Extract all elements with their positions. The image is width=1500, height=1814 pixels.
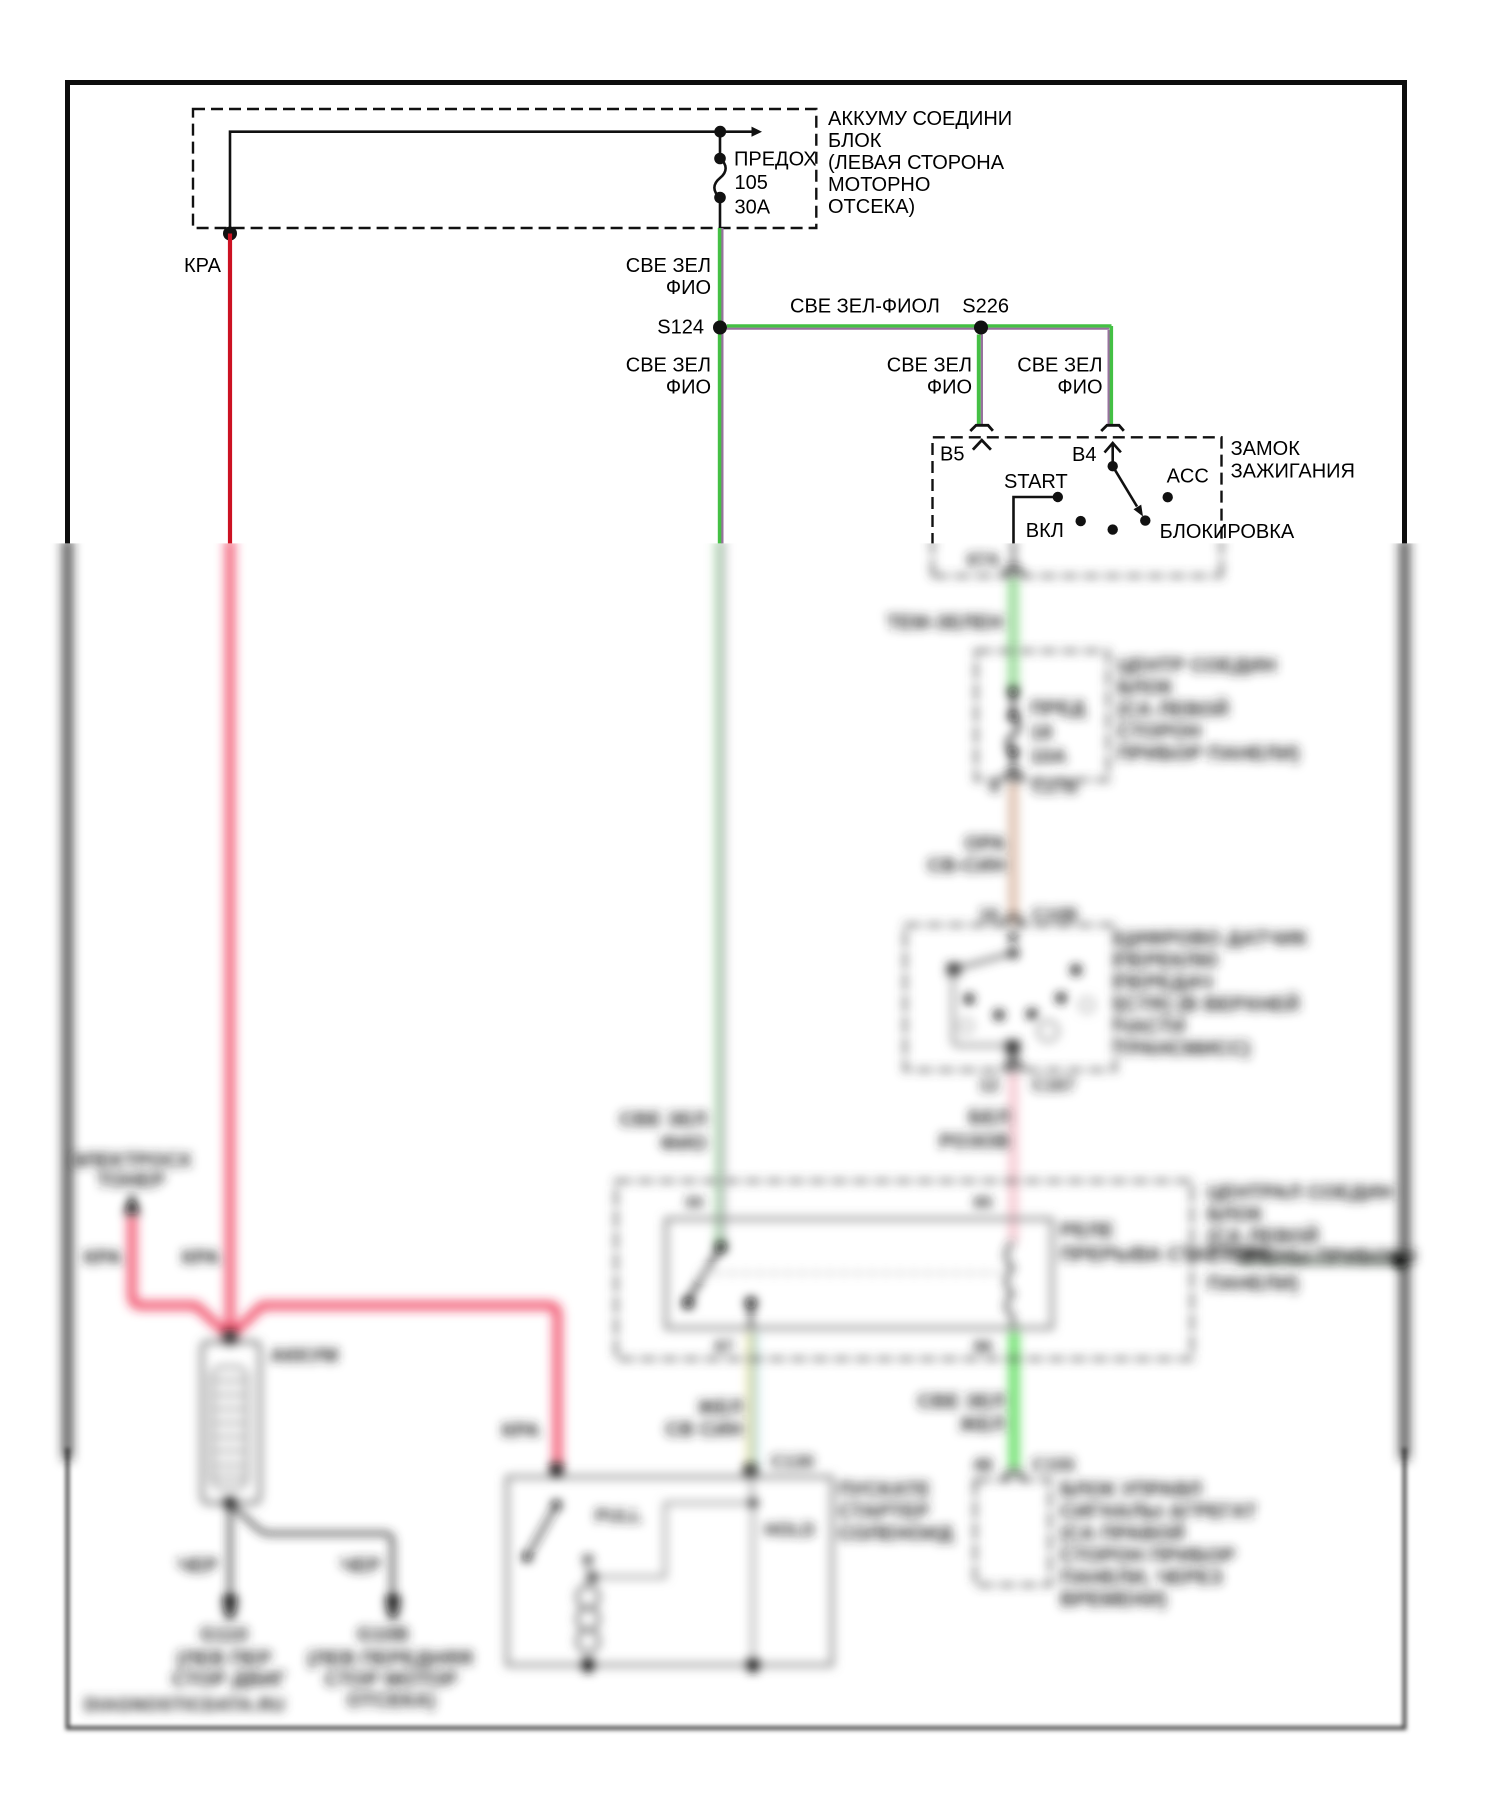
svg-text:ФИО: ФИО (666, 277, 711, 299)
svg-text:СВЕ ЗЕЛ: СВЕ ЗЕЛ (887, 354, 972, 376)
svg-text:ПРЕД: ПРЕД (1030, 698, 1085, 720)
svg-text:S124: S124 (657, 316, 704, 338)
svg-text:85: 85 (974, 1193, 993, 1212)
svg-text:(СА ПРАВОЙ: (СА ПРАВОЙ (1060, 1521, 1185, 1545)
svg-text:18: 18 (1030, 722, 1052, 744)
svg-text:30: 30 (685, 1193, 704, 1212)
svg-text:СВЕ ЗЕЛ: СВЕ ЗЕЛ (917, 1391, 1005, 1413)
svg-text:ОРА: ОРА (964, 833, 1006, 855)
svg-text:(СА ЛЕВОЙ: (СА ЛЕВОЙ (1117, 697, 1229, 721)
svg-text:АККУМУ СОЕДИНИ: АККУМУ СОЕДИНИ (828, 108, 1012, 130)
svg-text:ФИО: ФИО (1057, 376, 1102, 398)
svg-text:12: 12 (979, 1075, 999, 1095)
svg-text:S226: S226 (962, 295, 1009, 317)
svg-text:ВРЕМЕНИ): ВРЕМЕНИ) (1060, 1589, 1167, 1611)
svg-text:ПАНЕЛИ): ПАНЕЛИ) (1207, 1273, 1299, 1295)
svg-text:(ЛЕВАЯ СТОРОНА: (ЛЕВАЯ СТОРОНА (828, 152, 1005, 174)
svg-text:СВЕ ЗЕЛ-ФИОЛ: СВЕ ЗЕЛ-ФИОЛ (790, 295, 940, 317)
svg-text:БЕЛ: БЕЛ (968, 1107, 1010, 1129)
svg-text:(СА ЛЕВОЙ: (СА ЛЕВОЙ (1207, 1224, 1319, 1248)
svg-text:СТОРОНЫ ПРИБОРН: СТОРОНЫ ПРИБОРН (1207, 1246, 1416, 1268)
svg-text:10А: 10А (1030, 746, 1067, 768)
svg-text:86: 86 (974, 1337, 993, 1356)
svg-text:ФИО: ФИО (660, 1133, 707, 1155)
svg-text:СВЕ ЗЕЛ: СВЕ ЗЕЛ (619, 1109, 707, 1131)
svg-text:РЕЛЕ: РЕЛЕ (1060, 1220, 1114, 1242)
svg-text:СВЕ ЗЕЛ: СВЕ ЗЕЛ (1017, 354, 1102, 376)
svg-text:ПАНЕЛИ, ЧЕРЕЗ: ПАНЕЛИ, ЧЕРЕЗ (1060, 1567, 1223, 1589)
svg-text:БЛОК УПРАВЛ: БЛОК УПРАВЛ (1060, 1479, 1202, 1501)
svg-text:ФИО: ФИО (927, 376, 972, 398)
svg-text:СТОР МОТОР: СТОР МОТОР (325, 1669, 458, 1691)
svg-text:С27В: С27В (1032, 777, 1078, 797)
svg-text:105: 105 (735, 172, 768, 194)
svg-text:ЖЕЛ: ЖЕЛ (697, 1397, 743, 1419)
svg-text:ЗАМОК: ЗАМОК (1231, 438, 1301, 460)
svg-text:G10B: G10B (357, 1624, 409, 1646)
svg-text:СВЕ ЗЕЛ: СВЕ ЗЕЛ (626, 354, 711, 376)
svg-text:БЛОК: БЛОК (1117, 677, 1173, 699)
svg-text:16: 16 (979, 905, 999, 925)
svg-text:СТОРОН: СТОРОН (1117, 721, 1201, 743)
svg-text:С167: С167 (1032, 1075, 1075, 1095)
svg-text:ТЕМ-ЗЕЛЕН: ТЕМ-ЗЕЛЕН (886, 612, 1003, 634)
svg-text:ВКЛ: ВКЛ (1026, 520, 1064, 542)
svg-text:ПРИБОР ПАНЕЛИ): ПРИБОР ПАНЕЛИ) (1117, 743, 1300, 765)
svg-text:СТОР ДВИГ: СТОР ДВИГ (172, 1669, 287, 1691)
svg-text:30А: 30А (735, 197, 771, 219)
svg-text:ACC: ACC (1167, 466, 1209, 488)
svg-text:46: 46 (973, 1455, 993, 1475)
svg-text:КРА: КРА (184, 255, 222, 277)
svg-text:С130: С130 (771, 1452, 814, 1472)
svg-text:С155: С155 (1032, 1455, 1075, 1475)
svg-text:БЛОК: БЛОК (828, 130, 882, 152)
svg-text:ЦИФРОВО ДАТЧИК: ЦИФРОВО ДАТЧИК (1117, 928, 1308, 950)
svg-text:СВ-СИН: СВ-СИН (927, 855, 1006, 877)
svg-text:СВЕ ЗЕЛ: СВЕ ЗЕЛ (626, 255, 711, 277)
svg-text:СТАРТЕР: СТАРТЕР (838, 1501, 929, 1523)
svg-text:КРА: КРА (84, 1247, 122, 1269)
svg-text:СИГНАЛЫ АГРЕГАТ: СИГНАЛЫ АГРЕГАТ (1060, 1501, 1257, 1523)
svg-text:ОТСЕКА): ОТСЕКА) (828, 196, 915, 218)
svg-text:ЗАЖИГАНИЯ: ЗАЖИГАНИЯ (1231, 461, 1355, 483)
svg-text:ЦЕНТРАЛ СОЕДИН: ЦЕНТРАЛ СОЕДИН (1207, 1182, 1393, 1204)
svg-text:РОЗОВ: РОЗОВ (939, 1131, 1010, 1153)
svg-text:B5: B5 (940, 444, 964, 466)
svg-text:PULL: PULL (595, 1506, 642, 1526)
svg-text:С10В: С10В (1032, 905, 1078, 925)
svg-text:БЛОК: БЛОК (1207, 1204, 1263, 1226)
svg-text:ЖЕЛ: ЖЕЛ (959, 1414, 1005, 1436)
svg-text:(ЛЕВ ПЕР: (ЛЕВ ПЕР (176, 1648, 271, 1670)
svg-text:4: 4 (989, 777, 999, 797)
svg-text:ЧЕР: ЧЕР (177, 1555, 218, 1577)
svg-text:СВ СИН: СВ СИН (665, 1419, 743, 1441)
svg-text:G110: G110 (200, 1624, 248, 1646)
svg-text:ТОНЕР: ТОНЕР (97, 1170, 165, 1192)
svg-text:ТРАНСМИСС): ТРАНСМИСС) (1117, 1038, 1250, 1060)
svg-text:ПЕРЕКЛЮ: ПЕРЕКЛЮ (1117, 950, 1218, 972)
svg-text:АККУМ: АККУМ (270, 1345, 338, 1367)
svg-text:87: 87 (715, 1337, 734, 1356)
svg-text:ОТСЕКА): ОТСЕКА) (347, 1690, 436, 1712)
svg-text:ПРЕДОХ: ПРЕДОХ (734, 148, 817, 170)
svg-text:DIAGNOSTICDATA.RU: DIAGNOSTICDATA.RU (84, 1695, 286, 1715)
svg-text:СОЛЕНОИД: СОЛЕНОИД (838, 1523, 953, 1545)
svg-text:ПУСКАТЕ: ПУСКАТЕ (838, 1479, 930, 1501)
svg-text:ЦЕНТР СОЕДИН: ЦЕНТР СОЕДИН (1117, 655, 1276, 677)
svg-text:ЧЕР: ЧЕР (340, 1555, 381, 1577)
svg-text:КРА: КРА (502, 1420, 540, 1442)
svg-text:(CTR) (В ВЕРХНЕЙ: (CTR) (В ВЕРХНЕЙ (1117, 992, 1300, 1016)
svg-text:ПЕРЕДАЧ: ПЕРЕДАЧ (1117, 972, 1213, 994)
svg-text:ЧАСТИ: ЧАСТИ (1117, 1016, 1186, 1038)
svg-text:HOLD: HOLD (764, 1520, 815, 1540)
svg-text:67А: 67А (967, 550, 1000, 570)
svg-text:ЭЛЕКТРОСХ: ЭЛЕКТРОСХ (70, 1150, 192, 1172)
svg-text:СТОРОН ПРИБОР: СТОРОН ПРИБОР (1060, 1545, 1235, 1567)
svg-text:КРА: КРА (182, 1247, 220, 1269)
svg-text:START: START (1004, 471, 1068, 493)
svg-text:B4: B4 (1072, 444, 1096, 466)
svg-text:МОТОРНО: МОТОРНО (828, 174, 930, 196)
svg-text:ФИО: ФИО (666, 376, 711, 398)
svg-text:(ЛЕВ ПЕРЕДНЯЯ: (ЛЕВ ПЕРЕДНЯЯ (307, 1648, 473, 1670)
svg-text:БЛОКИРОВКА: БЛОКИРОВКА (1160, 521, 1295, 543)
